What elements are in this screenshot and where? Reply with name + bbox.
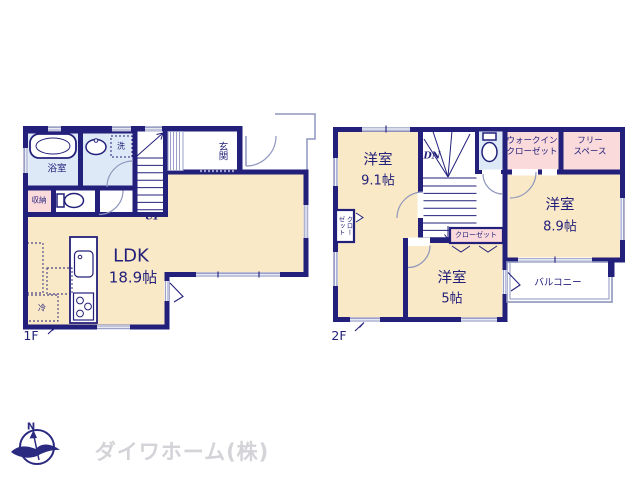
- free-space-label-line2: スペース: [574, 148, 607, 158]
- room-label-entrance: 玄関: [216, 142, 227, 161]
- room-hall-closet: [98, 188, 136, 215]
- room-label-bedroom3: 洋室: [438, 271, 467, 288]
- room-label-bathroom: 浴室: [47, 165, 66, 176]
- door-gap-wic: [542, 169, 557, 176]
- stairs-up-label: UP: [145, 211, 161, 223]
- balcony-label: バルコニー: [534, 279, 581, 290]
- shoe-cabinet-hatch: [168, 132, 183, 171]
- entrance-door-arc: [246, 136, 276, 166]
- room-size-ldk: 18.9帖: [109, 269, 157, 286]
- compass-icon: [11, 430, 60, 464]
- door-gap-bedroom2: [512, 169, 538, 176]
- stairs-down-label: DN: [424, 152, 441, 163]
- compass-n-label: N: [27, 421, 35, 433]
- room-label-storage: 収納: [32, 197, 47, 206]
- room-label-ldk: LDK: [113, 247, 149, 268]
- company-name: ダイワホーム(株): [95, 440, 270, 464]
- floor-label-1f: 1F: [23, 329, 38, 343]
- wall-entrance-right: [237, 126, 243, 172]
- room-bedroom2: [505, 172, 623, 260]
- porch-outline: [275, 114, 315, 170]
- wic-label-line2: クローゼット: [506, 148, 557, 158]
- bathtub-icon: [30, 134, 76, 158]
- washbasin-icon: [86, 139, 106, 155]
- toilet-icon-2f: [482, 133, 497, 162]
- floorplan-page: 浴室 洗 収納 玄関 UP LDK 18.9帖 冷 1F 洋室 9.1帖 DN …: [0, 0, 640, 480]
- closet-label: クローゼット: [455, 231, 497, 239]
- room-size-bedroom3: 5帖: [441, 293, 462, 308]
- closet-side-label: クローゼット: [337, 215, 353, 237]
- stairs-1f: [135, 129, 166, 215]
- room-size-bedroom2: 8.9帖: [543, 221, 577, 236]
- floorplan-drawing: [0, 0, 640, 480]
- door-gap-bedroom3: [408, 238, 430, 247]
- toilet-icon-1f: [57, 194, 84, 208]
- door-gap-bedroom1: [418, 192, 424, 218]
- room-label-wash: 洗: [117, 141, 125, 150]
- room-size-bedroom1: 9.1帖: [361, 175, 395, 190]
- wall-stub-balcony: [608, 260, 615, 277]
- free-space-label-line1: フリー: [577, 137, 603, 147]
- kitchen-counter: [70, 237, 97, 323]
- room-label-bedroom2: 洋室: [546, 198, 575, 215]
- fridge-label: 冷: [38, 303, 46, 312]
- wic-label-line1: ウォークイン: [506, 137, 557, 147]
- floor-plan-1f: [23, 114, 315, 334]
- room-label-bedroom1: 洋室: [364, 153, 393, 170]
- door-gap-toilet2f: [482, 170, 501, 176]
- floor-label-2f: 2F: [331, 329, 346, 343]
